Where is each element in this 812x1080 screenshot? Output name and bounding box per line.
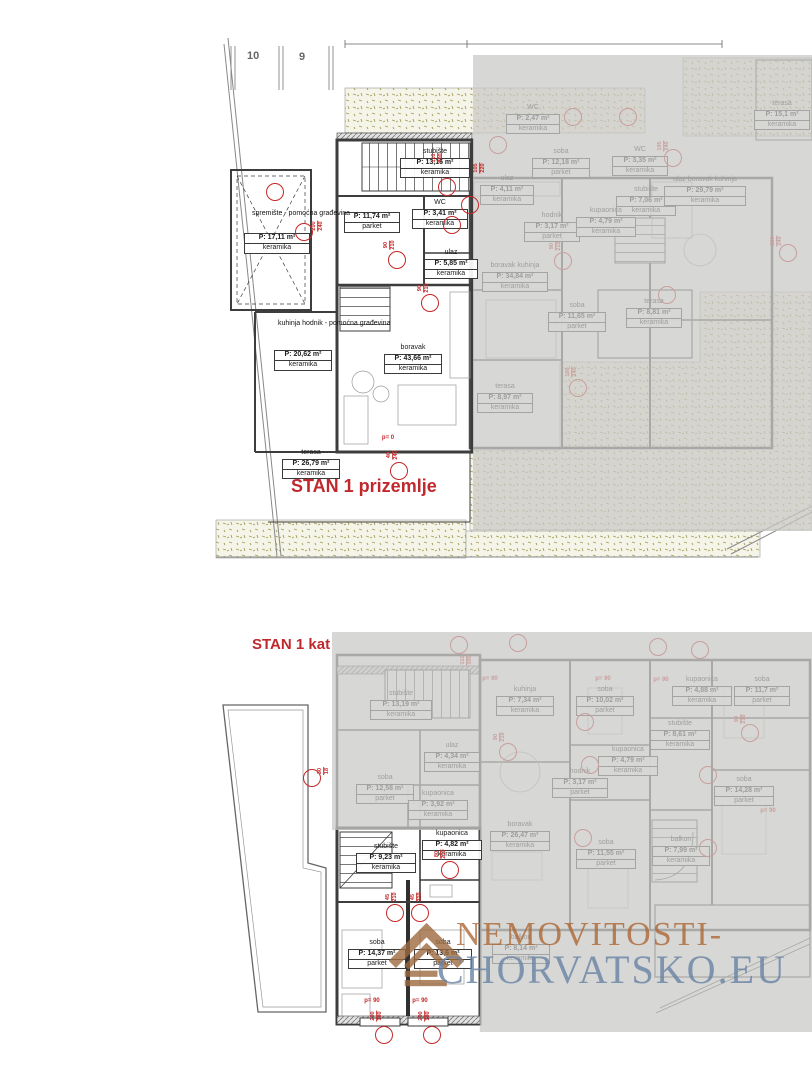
floor-plan-sheet: WCP: 2,47 m²keramikasobaP: 12,18 m²parke… [0, 0, 812, 1080]
titles-layer: STAN 1 prizemlje STAN 1 kat 10 9 [0, 0, 812, 1080]
plan1-title: STAN 1 prizemlje [291, 476, 437, 497]
plan2-title: STAN 1 kat [252, 636, 330, 653]
parcel-number-9: 9 [299, 51, 305, 63]
parcel-number-10: 10 [247, 50, 259, 62]
